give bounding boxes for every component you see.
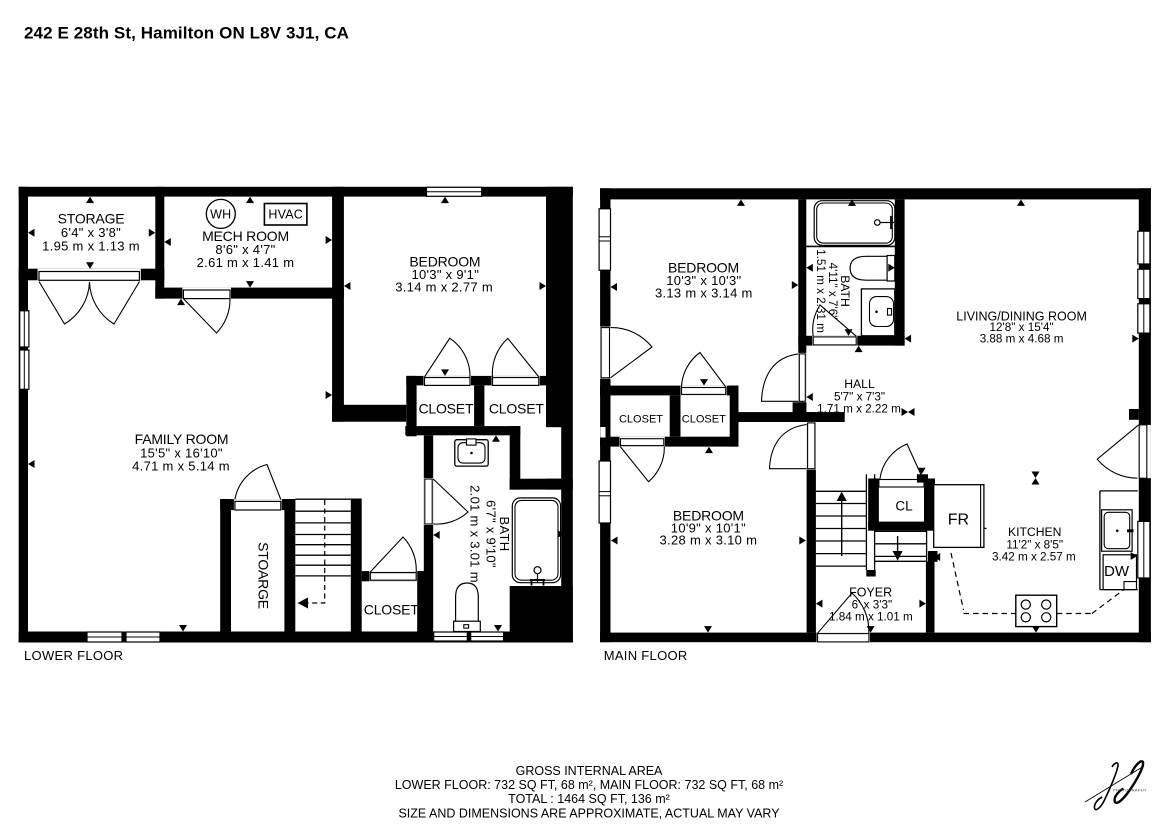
svg-text:TOTAL : 1464 SQ FT, 136 m²: TOTAL : 1464 SQ FT, 136 m² [508, 792, 670, 806]
svg-text:1.71 m x 2.22 m: 1.71 m x 2.22 m [817, 402, 901, 415]
svg-text:11'2" x 8'5": 11'2" x 8'5" [1006, 539, 1063, 552]
svg-text:3.88 m x 4.68 m: 3.88 m x 4.68 m [980, 333, 1064, 346]
svg-text:2.01 m x 3.01 m: 2.01 m x 3.01 m [468, 485, 483, 583]
svg-text:3.42 m x 2.57 m: 3.42 m x 2.57 m [992, 551, 1076, 564]
svg-text:3.13 m x 3.14 m: 3.13 m x 3.14 m [655, 285, 753, 300]
svg-text:LOWER FLOOR: LOWER FLOOR [24, 648, 123, 663]
svg-text:BATH: BATH [838, 275, 852, 307]
svg-text:4.71 m x 5.14 m: 4.71 m x 5.14 m [132, 458, 230, 473]
svg-text:KITCHEN: KITCHEN [1008, 525, 1062, 539]
svg-text:STOARGE: STOARGE [256, 542, 272, 609]
svg-text:6'7" x 9'10": 6'7" x 9'10" [484, 500, 499, 568]
svg-text:FAMILY ROOM: FAMILY ROOM [135, 431, 229, 447]
svg-text:CL: CL [895, 498, 913, 513]
svg-text:CLOSET: CLOSET [682, 413, 726, 425]
svg-text:GROSS INTERNAL AREA: GROSS INTERNAL AREA [516, 764, 663, 778]
svg-text:1.84 m x 1.01 m: 1.84 m x 1.01 m [829, 610, 913, 623]
svg-text:CLOSET: CLOSET [619, 413, 663, 425]
svg-text:3.28 m x 3.10 m: 3.28 m x 3.10 m [660, 533, 758, 548]
svg-text:242 E 28th St, Hamilton ON L8V: 242 E 28th St, Hamilton ON L8V 3J1, CA [24, 24, 349, 43]
svg-text:3.14 m x 2.77 m: 3.14 m x 2.77 m [395, 280, 493, 295]
svg-text:SIZE AND DIMENSIONS ARE APPROX: SIZE AND DIMENSIONS ARE APPROXIMATE, ACT… [398, 807, 780, 821]
svg-text:CLOSET: CLOSET [489, 401, 544, 417]
svg-text:CLOSET: CLOSET [364, 602, 419, 618]
svg-text:FR: FR [948, 511, 969, 528]
svg-text:CLOSET: CLOSET [418, 401, 473, 417]
svg-text:1.51 m x 2.31 m: 1.51 m x 2.31 m [814, 249, 827, 333]
svg-text:DW: DW [1104, 563, 1130, 580]
svg-text:WH: WH [210, 207, 231, 221]
svg-text:MAIN FLOOR: MAIN FLOOR [604, 648, 688, 663]
svg-text:HVAC: HVAC [268, 207, 303, 221]
svg-text:LOWER FLOOR: 732 SQ FT, 68 m²,: LOWER FLOOR: 732 SQ FT, 68 m², MAIN FLOO… [395, 778, 783, 792]
svg-text:HALL: HALL [844, 377, 875, 391]
svg-text:2.61 m x 1.41 m: 2.61 m x 1.41 m [197, 255, 295, 270]
svg-text:1.95 m x 1.13 m: 1.95 m x 1.13 m [42, 238, 140, 253]
svg-text:PHOTOGRAPHY: PHOTOGRAPHY [1113, 788, 1147, 793]
